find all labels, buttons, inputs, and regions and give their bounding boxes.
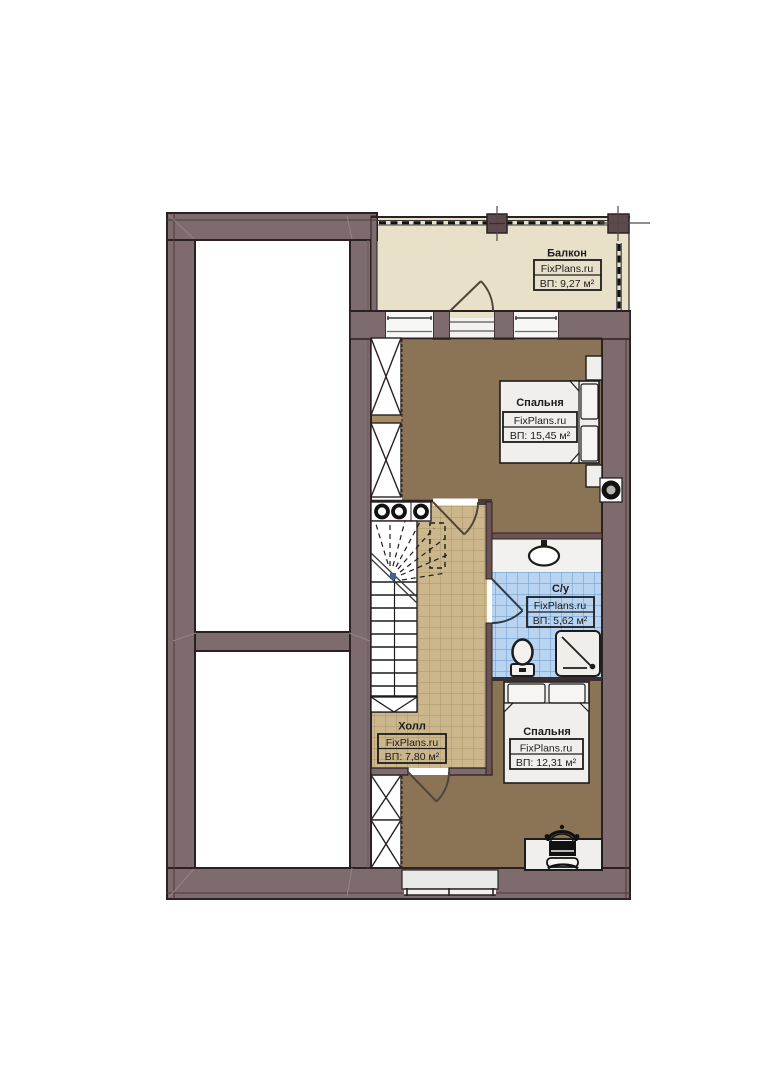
svg-text:FixPlans.ru: FixPlans.ru <box>541 263 594 275</box>
svg-text:Спальня: Спальня <box>523 726 571 738</box>
svg-text:Холл: Холл <box>398 721 426 733</box>
svg-text:FixPlans.ru: FixPlans.ru <box>386 737 439 749</box>
svg-text:ВП: 12,31 м²: ВП: 12,31 м² <box>516 757 577 769</box>
svg-text:FixPlans.ru: FixPlans.ru <box>514 415 567 427</box>
svg-text:ВП: 15,45 м²: ВП: 15,45 м² <box>510 430 571 442</box>
svg-text:FixPlans.ru: FixPlans.ru <box>520 743 573 755</box>
svg-text:FixPlans.ru: FixPlans.ru <box>534 600 587 612</box>
svg-text:ВП: 9,27 м²: ВП: 9,27 м² <box>540 278 595 290</box>
svg-text:С/у: С/у <box>552 583 570 595</box>
svg-text:ВП: 5,62 м²: ВП: 5,62 м² <box>533 615 588 627</box>
svg-text:Спальня: Спальня <box>516 397 564 409</box>
svg-text:ВП: 7,80 м²: ВП: 7,80 м² <box>385 751 440 763</box>
svg-text:Балкон: Балкон <box>547 248 587 260</box>
